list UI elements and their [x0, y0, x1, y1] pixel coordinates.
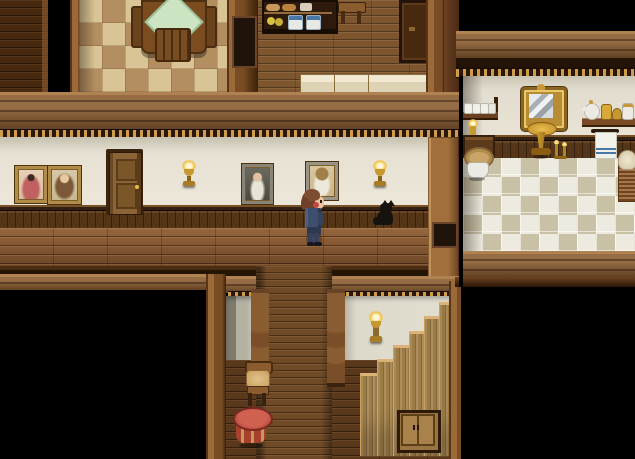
- stool-leg: [341, 11, 345, 24]
- baluster: [327, 289, 345, 387]
- gold-jar-icon: [601, 104, 612, 120]
- wall-gap: [459, 76, 463, 287]
- vent-panel: [432, 222, 458, 248]
- dark-room-top-frame: [0, 274, 208, 290]
- cabinet-door: [417, 414, 435, 446]
- door-panel: [116, 159, 137, 181]
- bathroom-floor-edge: [463, 251, 635, 277]
- black-cat[interactable]: [373, 201, 395, 225]
- kitchen-right-frame: [426, 0, 444, 92]
- jar-shelf[interactable]: [582, 99, 635, 127]
- basket-cloth: [618, 150, 635, 170]
- cabinet-handle: [413, 425, 415, 430]
- cat-tail: [373, 217, 379, 225]
- candle-base: [554, 156, 567, 159]
- jar-icon: [300, 3, 312, 11]
- bathroom-beam-shadow: [456, 58, 635, 68]
- mirror-crest: [537, 84, 545, 90]
- player-character[interactable]: [300, 189, 326, 247]
- landing-chair[interactable]: [243, 361, 271, 408]
- sink-shadow: [534, 155, 548, 159]
- portrait-red-lady[interactable]: [15, 166, 47, 203]
- mirror-glass: [529, 94, 553, 118]
- toilet[interactable]: [462, 135, 492, 181]
- sink[interactable]: [527, 122, 557, 162]
- teapot-icon: [584, 103, 600, 120]
- blue-pot-icon: [288, 15, 303, 30]
- kitchen-counter[interactable]: [300, 74, 335, 93]
- lamp-cup: [375, 169, 385, 176]
- cat-body: [377, 210, 393, 225]
- blue-pot-icon: [306, 15, 321, 30]
- stool-leg: [357, 11, 361, 24]
- hall-door[interactable]: [109, 152, 142, 215]
- portrait-girl[interactable]: [48, 166, 81, 204]
- player-shoe: [307, 242, 314, 246]
- dining-left-frame: [70, 0, 79, 92]
- lamp-base: [374, 181, 386, 186]
- dark-room-right-frame: [206, 274, 226, 459]
- lemon-icon: [267, 17, 275, 25]
- hallway-floor: [0, 228, 432, 266]
- wall-inset-panel: [232, 16, 257, 68]
- chair-leg: [262, 393, 266, 406]
- white-jar-icon: [622, 103, 634, 120]
- under-stair-cabinet[interactable]: [397, 410, 441, 453]
- lamp-cup: [184, 169, 194, 176]
- wall-lamp: [371, 160, 389, 187]
- sink-pedestal: [536, 132, 546, 149]
- basket[interactable]: [618, 150, 635, 200]
- teapot-lid: [589, 100, 593, 104]
- sink-base: [531, 148, 551, 155]
- door-panel: [116, 183, 137, 209]
- bathroom-bottom-frame: [455, 277, 635, 287]
- player-arm: [318, 212, 323, 225]
- dining-chair-front[interactable]: [155, 28, 191, 62]
- kitchen-counter[interactable]: [334, 74, 369, 93]
- candle-stand: [554, 140, 567, 160]
- kitchen-counter[interactable]: [368, 74, 429, 93]
- toilet-shadow: [469, 177, 485, 181]
- lamp-base: [183, 181, 195, 186]
- hallway-upper-wall: [0, 92, 459, 130]
- stool-top: [233, 407, 273, 431]
- portrait-dark-lady[interactable]: [242, 164, 273, 204]
- hall-door-frame: [106, 149, 143, 215]
- shelf-board: [264, 12, 332, 14]
- stool-shadow: [239, 443, 263, 448]
- player-shoe: [314, 242, 322, 246]
- towel-cloth: [595, 132, 617, 159]
- player-eye: [320, 200, 322, 203]
- bathroom-top-beam: [456, 31, 635, 58]
- candle-stick: [555, 144, 558, 156]
- chair-leg: [248, 393, 252, 406]
- stair-room-right-frame: [449, 281, 461, 459]
- bread-icon: [266, 4, 280, 11]
- bread-icon: [282, 4, 296, 11]
- kitchen-stool[interactable]: [338, 2, 364, 24]
- hallway-end-pillar: [428, 137, 459, 286]
- cabinet-handle: [417, 425, 419, 430]
- dark-plank-wall: [0, 0, 48, 97]
- door-knob-icon: [135, 185, 139, 189]
- wainscot: [0, 211, 430, 229]
- cabinet-handle: [409, 27, 415, 31]
- dining-wall-shadow: [79, 0, 95, 92]
- kitchen-shelf[interactable]: [262, 0, 338, 34]
- gold-pot-icon: [612, 108, 622, 120]
- red-stool[interactable]: [233, 407, 269, 447]
- towel: [591, 129, 619, 159]
- lemon-icon: [275, 18, 283, 26]
- wall-lamp: [180, 160, 198, 187]
- cup-icon: [488, 103, 496, 114]
- game-viewport[interactable]: [0, 0, 635, 459]
